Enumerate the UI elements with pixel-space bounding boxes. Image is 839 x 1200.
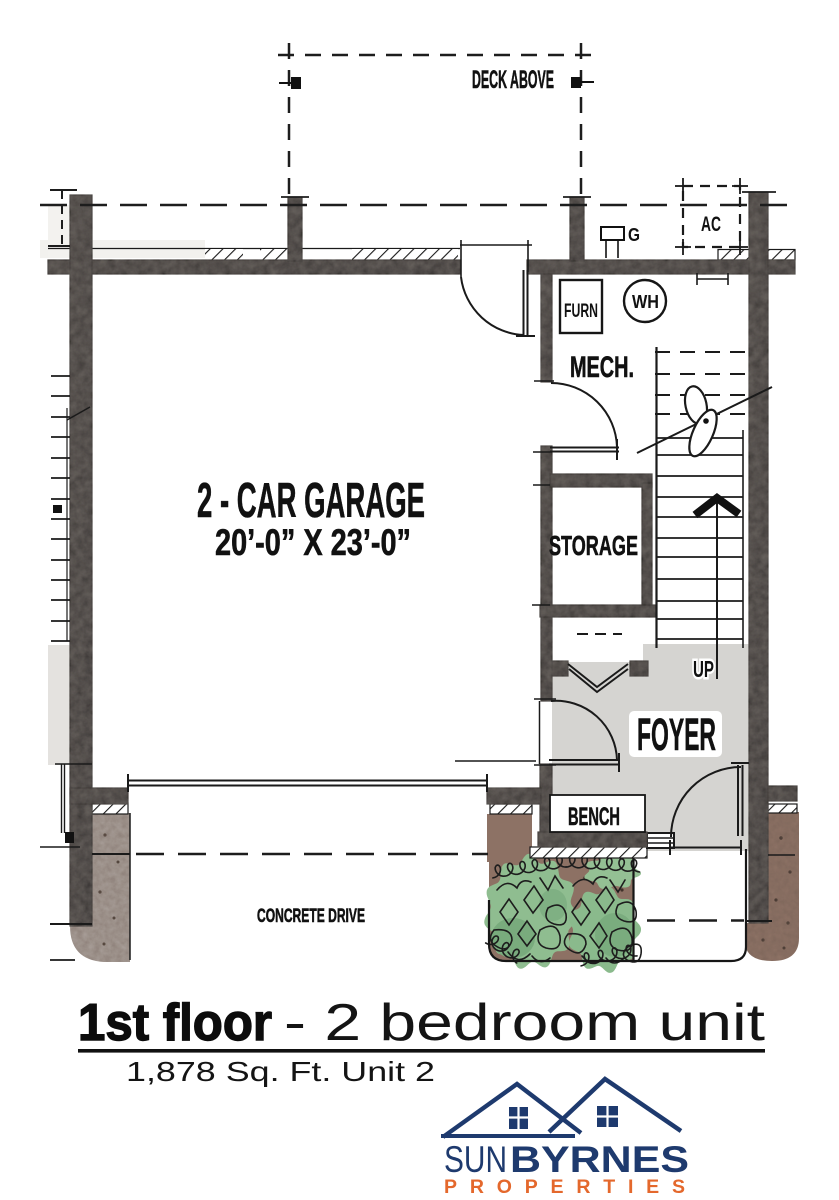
svg-text:MECH.: MECH. [570,351,634,384]
svg-text:FOYER: FOYER [637,709,716,760]
svg-text:UP: UP [693,656,714,682]
svg-text:CONCRETE DRIVE: CONCRETE DRIVE [257,905,365,927]
svg-text:BYRNES: BYRNES [510,1139,689,1180]
svg-text:2 - CAR GARAGE: 2 - CAR GARAGE [197,474,425,528]
svg-text:G: G [628,225,640,245]
svg-text:- 2 bedroom unit: - 2 bedroom unit [284,994,766,1052]
svg-text:STORAGE: STORAGE [549,530,638,561]
svg-text:BENCH: BENCH [568,803,620,831]
svg-text:1st floor: 1st floor [78,994,272,1052]
svg-text:DECK ABOVE: DECK ABOVE [472,66,554,94]
svg-text:WH: WH [632,291,659,312]
svg-text:1,878 Sq. Ft. Unit 2: 1,878 Sq. Ft. Unit 2 [126,1056,435,1087]
svg-text:SUN: SUN [444,1139,507,1180]
svg-text:AC: AC [701,213,721,236]
svg-text:20’-0” X 23’-0”: 20’-0” X 23’-0” [215,522,411,563]
svg-text:FURN: FURN [564,301,598,322]
